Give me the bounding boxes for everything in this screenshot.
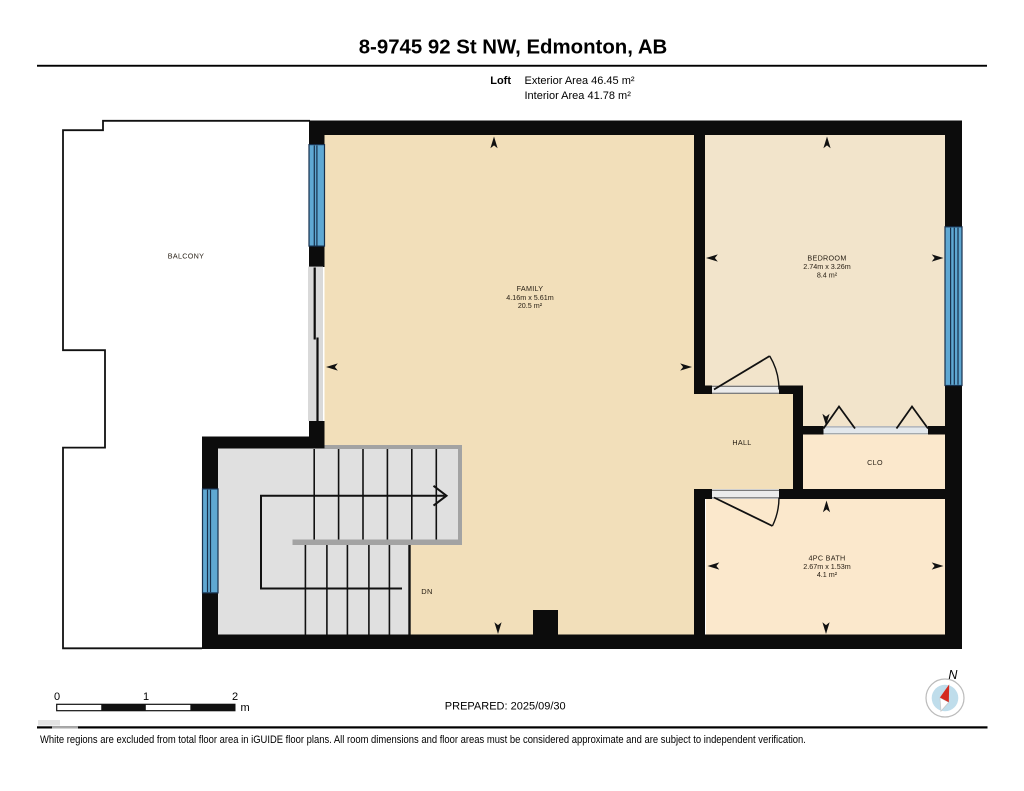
svg-text:Loft: Loft [490,75,511,87]
svg-text:1: 1 [143,691,149,703]
svg-text:20.5 m²: 20.5 m² [518,301,543,310]
svg-text:N: N [948,668,958,682]
svg-text:2: 2 [232,691,238,703]
svg-text:0: 0 [54,691,60,703]
svg-text:BALCONY: BALCONY [168,252,204,261]
svg-text:Exterior Area 46.45 m²: Exterior Area 46.45 m² [525,75,635,87]
svg-text:m: m [241,702,250,714]
svg-text:Interior Area 41.78 m²: Interior Area 41.78 m² [525,90,632,102]
svg-text:DN: DN [421,587,432,596]
svg-text:4.1 m²: 4.1 m² [817,570,838,579]
svg-text:8.4 m²: 8.4 m² [817,270,838,279]
svg-text:CLO: CLO [867,458,883,467]
svg-text:FAMILY: FAMILY [517,284,544,293]
svg-text:HALL: HALL [732,438,751,447]
svg-text:PREPARED: 2025/09/30: PREPARED: 2025/09/30 [445,701,566,713]
svg-text:8-9745 92 St NW, Edmonton, AB: 8-9745 92 St NW, Edmonton, AB [359,37,668,59]
svg-text:White regions are excluded fro: White regions are excluded from total fl… [40,734,806,746]
